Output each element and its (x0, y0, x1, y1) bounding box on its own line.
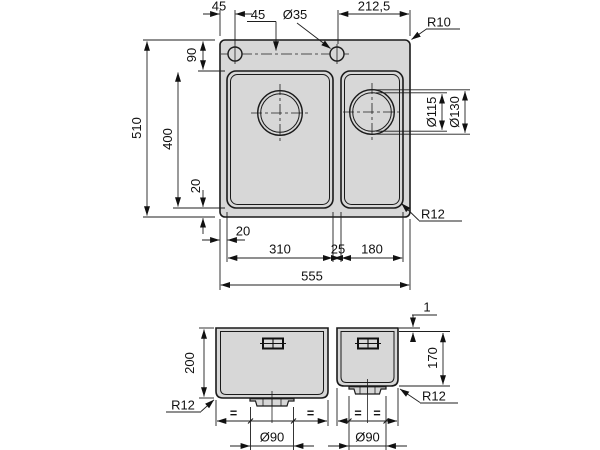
overflow-slot-right (355, 339, 381, 349)
dim-overall-depth-label: 510 (129, 117, 144, 139)
dim-left-bowl-width-label: 310 (269, 242, 291, 257)
dim-hole-offset-left-label: 45 (212, 0, 226, 14)
dim-drain-right-dia-label: Ø90 (355, 430, 380, 445)
dim-bowl-gap-label: 25 (331, 242, 345, 257)
dim-drain-outer-dia-label: Ø130 (447, 96, 462, 128)
dim-left-bowl-height-label: 200 (182, 352, 197, 374)
equal-mark: = (354, 407, 361, 421)
overflow-slot-left (260, 339, 286, 349)
dim-overall-width-label: 555 (301, 269, 323, 284)
dim-corner-radius-right-label: R12 (422, 389, 446, 404)
dim-corner-radius-left-label: R12 (171, 398, 195, 413)
dim-hole-offset-right-label: 212,5 (358, 0, 391, 14)
equal-mark: = (373, 407, 380, 421)
dim-rim-bottom-label: 20 (188, 179, 203, 193)
dim-right-bowl-height-label: 170 (425, 347, 440, 369)
dim-hole-depth-label: 45 (251, 7, 265, 22)
dim-bowl-corner-radius-label: R12 (421, 207, 445, 222)
dim-rim-left-label: 20 (236, 224, 250, 239)
dim-rim-top-label: 90 (184, 48, 199, 62)
sink-technical-drawing: 45 45 Ø35 212,5 R10 90 510 400 20 Ø115 Ø… (0, 0, 600, 450)
dim-drain-inner-dia-label: Ø115 (424, 97, 439, 128)
top-view: 45 45 Ø35 212,5 R10 90 510 400 20 Ø115 Ø… (129, 0, 470, 290)
equal-mark: = (307, 407, 314, 421)
dim-rim-thickness-label: 1 (423, 300, 430, 315)
dim-bowl-depth-label: 400 (160, 128, 175, 150)
equal-mark: = (230, 407, 237, 421)
dim-right-bowl-width-label: 180 (361, 242, 383, 257)
front-right-bowl-outline (337, 328, 398, 386)
dim-hole-diameter-label: Ø35 (283, 7, 308, 22)
dim-outer-corner-radius-label: R10 (427, 15, 451, 30)
drawing-page: 45 45 Ø35 212,5 R10 90 510 400 20 Ø115 Ø… (0, 0, 600, 450)
front-view: 1 200 170 R12 R12 Ø90 Ø90 = = = = (166, 300, 458, 450)
dim-drain-left-dia-label: Ø90 (260, 430, 285, 445)
